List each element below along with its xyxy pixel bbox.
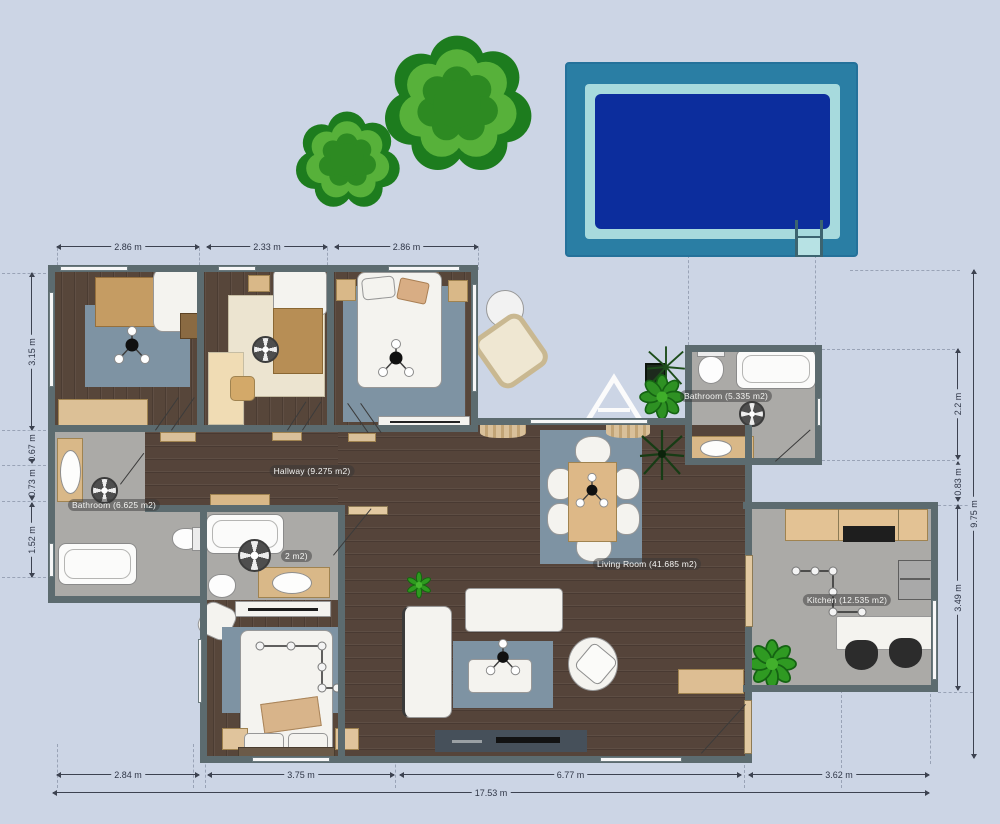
dimension: 2.86 m — [57, 246, 199, 247]
pool-ladder — [820, 220, 823, 256]
cabinet-divider — [838, 509, 839, 541]
dimension-label: 2.86 m — [390, 242, 424, 252]
doormat[interactable] — [160, 432, 196, 442]
stove[interactable] — [843, 526, 895, 542]
sofa[interactable] — [465, 588, 563, 632]
doormat[interactable] — [348, 433, 376, 442]
guide-line — [193, 744, 194, 788]
bed-blanket[interactable] — [95, 277, 159, 327]
dimension: 17.53 m — [53, 792, 929, 793]
wall — [685, 345, 822, 352]
wall — [200, 505, 207, 763]
dimension-label: 0.67 m — [27, 431, 37, 465]
dining-chair[interactable] — [613, 503, 640, 535]
wall — [743, 502, 938, 509]
dimension: 9.75 m — [973, 270, 974, 758]
wall — [327, 265, 334, 432]
dimension-label: 3.75 m — [284, 770, 318, 780]
doormat[interactable] — [272, 432, 302, 441]
guide-line — [2, 465, 46, 466]
dimension-label: 2.86 m — [111, 242, 145, 252]
bathroom-sink[interactable] — [60, 450, 81, 494]
pool-ladder-step — [795, 236, 823, 257]
plant-icon[interactable] — [748, 640, 796, 688]
ceiling-lamp-icon[interactable] — [110, 325, 154, 369]
tree-small — [296, 112, 400, 207]
dimension-label: 0.83 m — [953, 465, 963, 499]
nightstand[interactable] — [448, 280, 468, 302]
ensuite-label: 2 m2) — [281, 550, 312, 562]
ceiling-lamp-icon[interactable] — [572, 472, 612, 512]
trees[interactable] — [275, 14, 547, 228]
guide-line — [930, 694, 931, 764]
wall — [345, 756, 752, 763]
bar-stool[interactable] — [889, 638, 922, 668]
window[interactable] — [388, 266, 460, 271]
toilet[interactable] — [698, 356, 724, 384]
cabinet-divider — [898, 509, 899, 541]
ceiling-fan-icon[interactable] — [739, 401, 765, 427]
fridge[interactable] — [898, 560, 932, 600]
sideboard[interactable] — [678, 669, 744, 694]
dimension-label: 3.49 m — [953, 581, 963, 615]
wall — [197, 265, 204, 432]
dimension: 3.75 m — [208, 774, 394, 775]
hallway-label: Hallway (9.275 m2) — [270, 465, 355, 477]
dimension: 2.2 m — [957, 349, 958, 459]
dimension-label: 3.62 m — [822, 770, 856, 780]
window[interactable] — [49, 292, 54, 387]
window[interactable] — [252, 757, 330, 762]
palm-plant-icon[interactable] — [636, 426, 688, 482]
dimension: 2.84 m — [57, 774, 199, 775]
bathroom-sink[interactable] — [700, 440, 732, 457]
guide-line — [2, 501, 46, 502]
guide-line — [938, 692, 973, 693]
wall — [48, 425, 478, 432]
pillow[interactable] — [361, 275, 396, 300]
kitchen-label: Kitchen (12.535 m2) — [803, 594, 891, 606]
floor-plan-canvas: Hallway (9.275 m2)Bathroom (6.625 m2)Bat… — [0, 0, 1000, 824]
swimming-pool[interactable] — [565, 62, 858, 257]
window[interactable] — [198, 639, 202, 703]
guide-line — [57, 744, 58, 788]
guide-line — [850, 270, 960, 271]
shelf[interactable] — [248, 275, 270, 292]
wall — [145, 505, 345, 512]
bar-stool[interactable] — [845, 640, 878, 670]
guide-line — [2, 430, 46, 431]
guide-line — [2, 273, 46, 274]
window[interactable] — [600, 757, 682, 762]
shelf-detail — [390, 421, 460, 423]
sofa[interactable] — [402, 606, 452, 718]
bathtub[interactable] — [736, 349, 816, 389]
dimension: 0.83 m — [957, 462, 958, 501]
window[interactable] — [817, 398, 821, 426]
desk-chair[interactable] — [230, 376, 255, 401]
guide-line — [822, 349, 955, 350]
dimension-label: 6.77 m — [554, 770, 588, 780]
wall — [685, 345, 692, 465]
dimension-label: 3.15 m — [27, 335, 37, 369]
fridge-line — [900, 578, 930, 580]
window[interactable] — [218, 266, 256, 271]
dimension: 1.52 m — [31, 503, 32, 577]
window[interactable] — [60, 266, 128, 271]
guide-line — [688, 255, 689, 345]
pool-ladder — [795, 220, 798, 256]
tree-large — [385, 36, 531, 170]
guide-line — [822, 460, 955, 461]
dimension: 3.15 m — [31, 273, 32, 430]
window[interactable] — [932, 600, 937, 680]
wall — [48, 596, 207, 603]
dimension: 3.49 m — [957, 505, 958, 690]
dimension-label: 0.73 m — [27, 466, 37, 500]
plant-icon[interactable] — [639, 375, 685, 419]
lounge-chair[interactable] — [469, 309, 552, 393]
dimension: 2.33 m — [207, 246, 327, 247]
bathtub[interactable] — [58, 543, 137, 585]
curtain — [480, 425, 526, 438]
dimension: 0.67 m — [31, 432, 32, 463]
bathroom-top-label: Bathroom (5.335 m2) — [680, 390, 772, 402]
guide-line — [478, 248, 479, 270]
guide-line — [2, 577, 46, 578]
dimension-label: 2.84 m — [111, 770, 145, 780]
dimension: 3.62 m — [749, 774, 929, 775]
guide-line — [815, 255, 816, 345]
nightstand[interactable] — [336, 279, 356, 301]
window[interactable] — [530, 419, 648, 424]
dimension: 0.73 m — [31, 466, 32, 500]
dimension-label: 9.75 m — [969, 497, 979, 531]
pool-deck — [585, 84, 840, 239]
door-leaf[interactable] — [745, 555, 753, 627]
wall — [743, 685, 938, 692]
ceiling-lamp-icon[interactable] — [482, 638, 524, 680]
shelf-detail — [248, 608, 318, 611]
plant-icon[interactable] — [406, 572, 432, 598]
living-room-label: Living Room (41.685 m2) — [593, 558, 701, 570]
ceiling-fan-icon[interactable] — [252, 336, 279, 363]
tv-detail — [452, 740, 482, 743]
bed-blanket[interactable] — [273, 308, 323, 374]
window[interactable] — [472, 284, 477, 392]
dimension-label: 17.53 m — [472, 788, 511, 798]
side-table[interactable] — [180, 313, 198, 339]
pool-water — [595, 94, 830, 229]
window[interactable] — [49, 543, 54, 577]
track-light-icon[interactable] — [792, 562, 872, 620]
dimension-label: 2.2 m — [953, 390, 963, 419]
dimension-label: 1.52 m — [27, 523, 37, 557]
dimension: 2.86 m — [335, 246, 478, 247]
dimension: 6.77 m — [400, 774, 741, 775]
track-light-icon[interactable] — [255, 638, 345, 698]
ceiling-lamp-icon[interactable] — [374, 338, 418, 382]
wall — [685, 458, 822, 465]
ceiling-fan-icon[interactable] — [238, 539, 271, 572]
toilet[interactable] — [208, 574, 236, 598]
door-leaf[interactable] — [744, 700, 752, 754]
bathroom-sink[interactable] — [272, 572, 312, 594]
bathroom-left-label: Bathroom (6.625 m2) — [68, 499, 160, 511]
tv-screen — [496, 737, 560, 743]
dimension-label: 2.33 m — [250, 242, 284, 252]
